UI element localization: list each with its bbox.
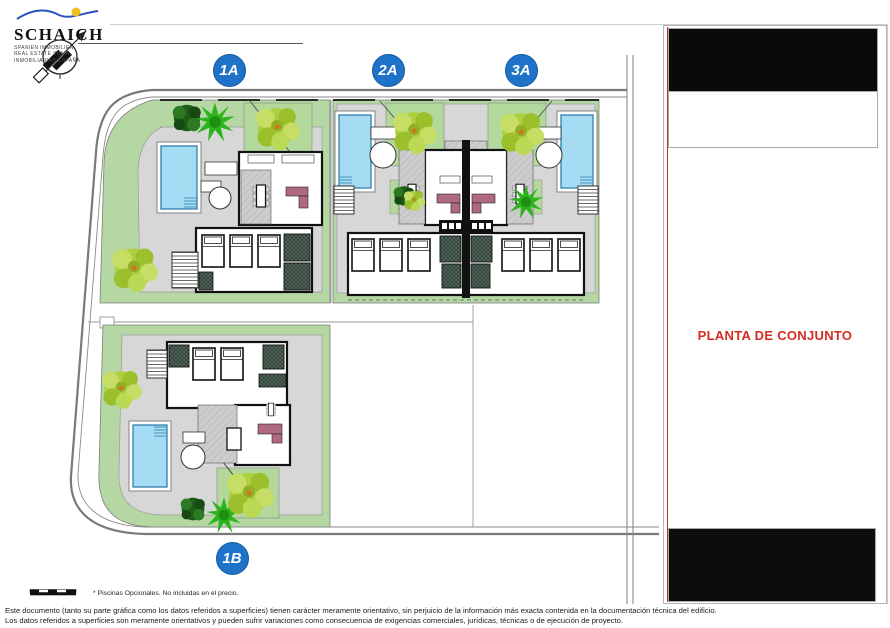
logo-wave-sun-icon <box>14 6 100 21</box>
party-wall <box>462 140 470 298</box>
sofa-1a <box>286 187 308 196</box>
unit-label-1b: 1B <box>216 542 249 575</box>
pool-1a <box>157 142 201 213</box>
unit-label-1a: 1A <box>213 54 246 87</box>
stairs-1b <box>147 350 167 378</box>
company-logo: SCHAICH SPANIEN IMMOBILIEN REAL ESTATE S… <box>14 6 124 64</box>
page-border-right <box>887 24 888 604</box>
pool-2a <box>335 111 375 192</box>
redacted-block-top <box>668 28 878 92</box>
plan-sheet: SCHAICH SPANIEN IMMOBILIEN REAL ESTATE S… <box>0 0 890 628</box>
redacted-block-bottom <box>668 528 876 602</box>
panel-empty-box <box>668 91 878 148</box>
brand-name: SCHAICH <box>14 26 124 43</box>
pool-note: * Piscinas Opcionales. No incluidas en e… <box>93 590 238 597</box>
villa-1b <box>99 325 330 533</box>
sofa-1b <box>258 424 282 434</box>
pool-3a <box>557 111 597 192</box>
scale-bar-icon <box>30 590 76 596</box>
tagline-3: INMOBILIARIAS ESPAÑA <box>14 58 124 64</box>
stairs-1a <box>172 252 198 288</box>
disclaimer-line-2: Los datos referidos a superficies son me… <box>5 616 885 626</box>
sofa-2a <box>437 194 460 203</box>
unit-label-2a: 2A <box>372 54 405 87</box>
unit-label-3a: 3A <box>505 54 538 87</box>
sofa-3a <box>472 194 495 203</box>
disclaimer-line-1: Este documento (tanto su parte gráfica c… <box>5 606 885 616</box>
plan-title: PLANTA DE CONJUNTO <box>663 328 887 343</box>
disclaimer: Este documento (tanto su parte gráfica c… <box>5 606 885 625</box>
villa-2a-3a <box>333 100 599 303</box>
villa-1a <box>100 100 331 303</box>
pool-1b <box>129 421 171 491</box>
